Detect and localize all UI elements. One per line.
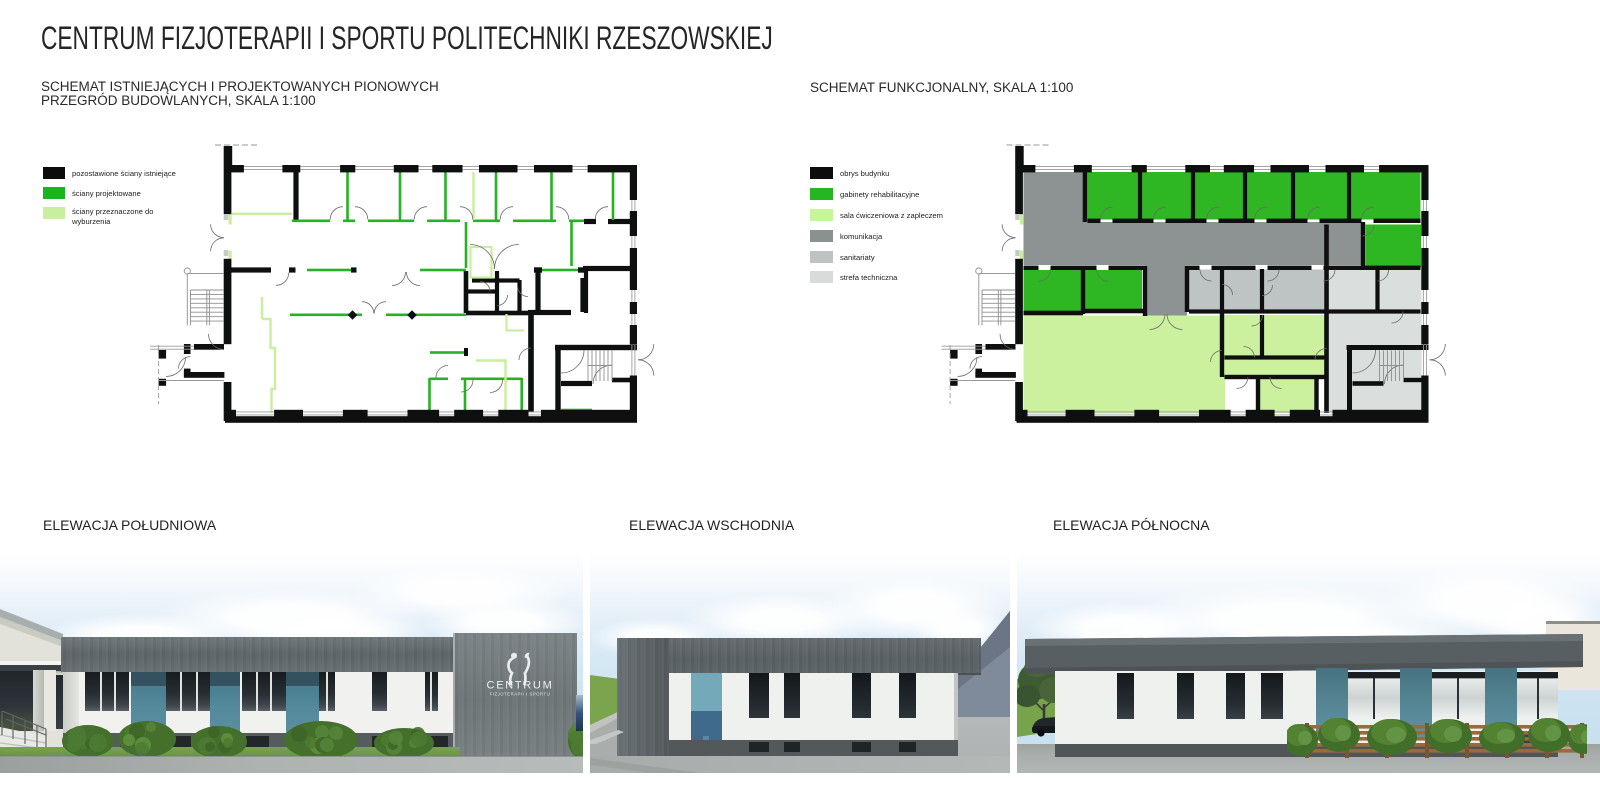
svg-text:CENTRUM: CENTRUM [487, 680, 554, 692]
svg-text:FIZJOTERAPII I SPORTU: FIZJOTERAPII I SPORTU [490, 692, 551, 697]
